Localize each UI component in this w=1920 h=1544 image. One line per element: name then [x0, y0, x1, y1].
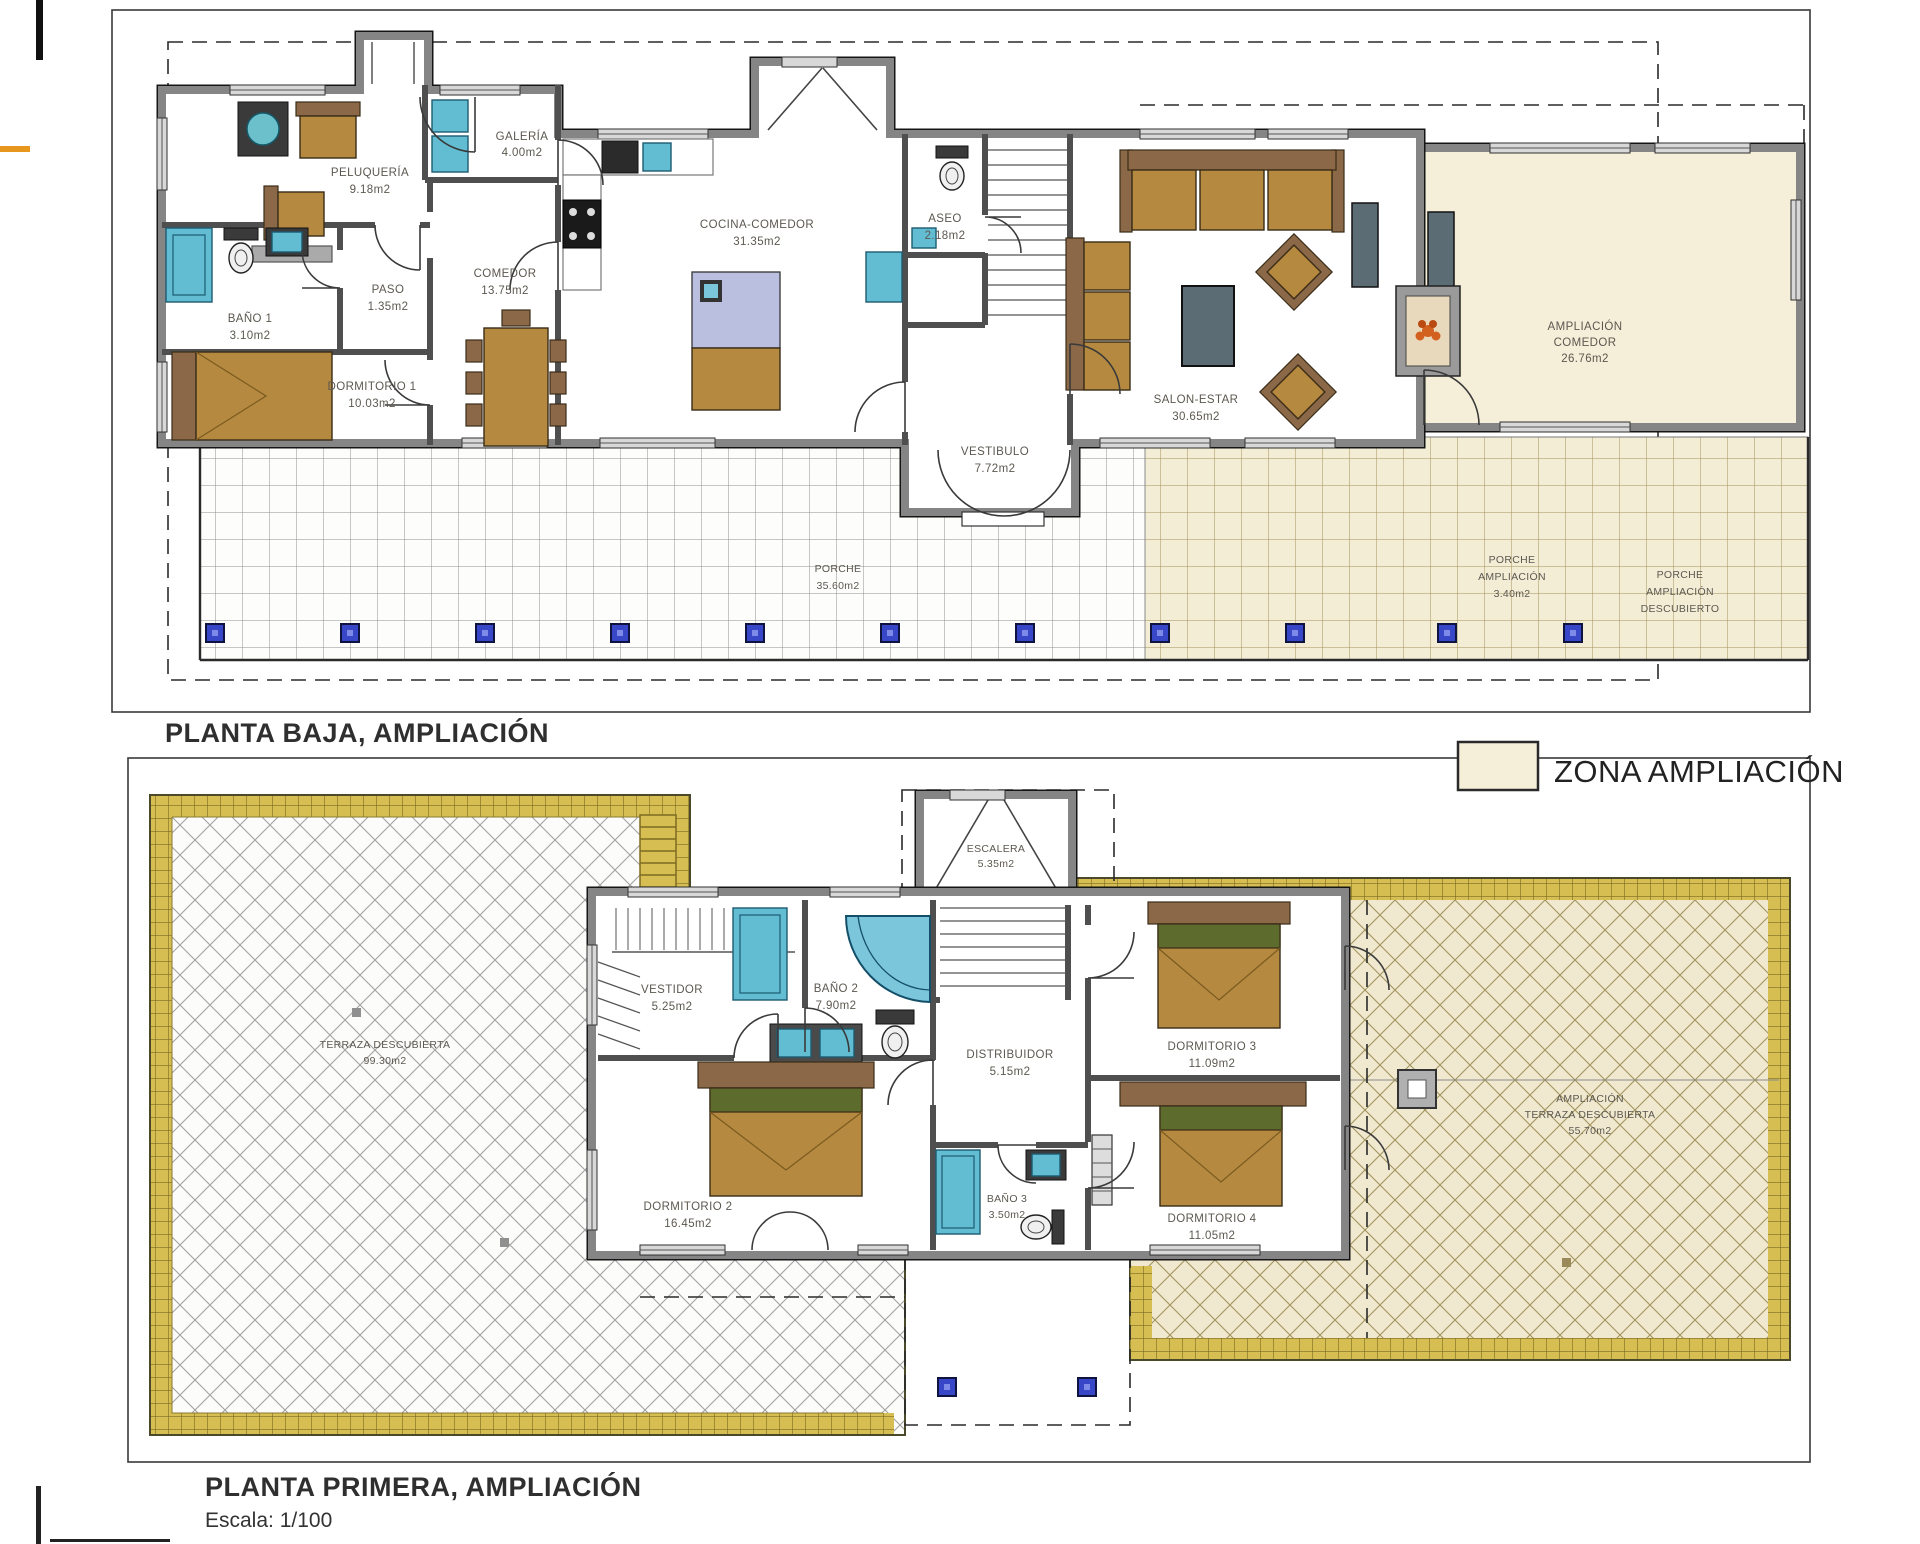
room-area-vestidor: 5.25m2: [652, 1001, 693, 1013]
room-area-dormitorio2: 16.45m2: [664, 1218, 712, 1230]
pillar: [206, 624, 224, 642]
ampliacion-terraza-area: 55.70m2: [1569, 1125, 1612, 1137]
entry-step: [962, 512, 1044, 526]
titles-and-legend: PLANTA BAJA, AMPLIACIÓN ZONA AMPLIACIÓN: [165, 717, 1844, 790]
scale-label: Escala: 1/100: [205, 1509, 332, 1532]
room-label-aseo: ASEO: [928, 213, 962, 225]
room-area-dormitorio4: 11.05m2: [1189, 1230, 1236, 1242]
room-label-comedor: COMEDOR: [474, 268, 537, 280]
dormitorio2-bed: [698, 1062, 874, 1196]
porch-descubierto-label-3: DESCUBIERTO: [1641, 603, 1720, 615]
room-area-paso: 1.35m2: [368, 301, 409, 313]
fireplace: [1396, 286, 1460, 376]
terraza-label: TERRAZA DESCUBIERTA: [320, 1039, 451, 1051]
room-label-ampliacion-comedor-2: COMEDOR: [1554, 337, 1617, 349]
room-label-vestibulo: VESTIBULO: [961, 446, 1029, 458]
room-area-cocina: 31.35m2: [733, 236, 781, 248]
first-floor-plan: ESCALERA 5.35m2 VESTIDOR 5.25m2 BAÑO 2 7…: [150, 790, 1790, 1435]
ampliacion-comedor-room: [1420, 143, 1801, 432]
room-label-salon: SALON-ESTAR: [1154, 394, 1239, 406]
legend-swatch: [1458, 742, 1538, 790]
floor-plan-drawing: PELUQUERÍA 9.18m2 GALERÍA 4.00m2 COMEDOR…: [0, 0, 1920, 1544]
ampliacion-terraza-label-2: TERRAZA DESCUBIERTA: [1525, 1109, 1656, 1121]
terraza-area: 99.30m2: [364, 1055, 407, 1067]
porch-label: PORCHE: [815, 563, 862, 575]
room-label-escalera: ESCALERA: [967, 843, 1025, 855]
room-label-bano3: BAÑO 3: [987, 1192, 1027, 1205]
room-label-galeria: GALERÍA: [496, 130, 549, 143]
room-label-dormitorio2: DORMITORIO 2: [644, 1201, 733, 1213]
dormitorio3-bed: [1148, 902, 1290, 1028]
first-floor-title: PLANTA PRIMERA, AMPLIACIÓN: [205, 1471, 641, 1502]
room-area-escalera: 5.35m2: [978, 858, 1015, 870]
room-area-peluqueria: 9.18m2: [350, 184, 391, 196]
galeria-appliances: [432, 100, 468, 172]
ampliacion-terraza-label-1: AMPLIACIÓN: [1556, 1092, 1624, 1105]
room-area-comedor: 13.75m2: [481, 285, 529, 297]
dormitorio1-bed: [172, 352, 332, 440]
bottom-titles: PLANTA PRIMERA, AMPLIACIÓN Escala: 1/100: [205, 1471, 641, 1532]
room-label-paso: PASO: [372, 284, 405, 296]
room-area-dormitorio1: 10.03m2: [348, 398, 396, 410]
room-label-dormitorio1: DORMITORIO 1: [328, 381, 417, 393]
room-label-peluqueria: PELUQUERÍA: [331, 166, 409, 179]
room-label-distribuidor: DISTRIBUIDOR: [966, 1049, 1053, 1061]
plan-sheet: PELUQUERÍA 9.18m2 GALERÍA 4.00m2 COMEDOR…: [0, 0, 1920, 1544]
ground-floor-title: PLANTA BAJA, AMPLIACIÓN: [165, 717, 549, 748]
room-area-galeria: 4.00m2: [502, 147, 543, 159]
room-label-bano1: BAÑO 1: [228, 312, 273, 325]
porch-ampliacion-area: 3.40m2: [1494, 588, 1531, 600]
room-area-ampliacion-comedor: 26.76m2: [1561, 353, 1609, 365]
porch-area: 35.60m2: [817, 580, 860, 592]
porch-descubierto-label-1: PORCHE: [1657, 569, 1704, 581]
porch-ampliacion-label-2: AMPLIACIÓN: [1478, 570, 1546, 583]
first-floor-pillars: [938, 1378, 1096, 1396]
room-area-bano2: 7.90m2: [816, 1000, 857, 1012]
room-label-bano2: BAÑO 2: [814, 982, 859, 995]
room-label-dormitorio3: DORMITORIO 3: [1168, 1041, 1257, 1053]
room-area-bano1: 3.10m2: [230, 330, 271, 342]
room-area-salon: 30.65m2: [1172, 411, 1220, 423]
room-area-vestibulo: 7.72m2: [975, 463, 1016, 475]
legend-label: ZONA AMPLIACIÓN: [1554, 754, 1844, 789]
room-label-vestidor: VESTIDOR: [641, 984, 703, 996]
ground-floor-plan: PELUQUERÍA 9.18m2 GALERÍA 4.00m2 COMEDOR…: [157, 36, 1808, 680]
room-area-distribuidor: 5.15m2: [990, 1066, 1031, 1078]
porch-ampliacion-label-1: PORCHE: [1489, 554, 1536, 566]
room-area-bano3: 3.50m2: [989, 1209, 1026, 1221]
room-area-dormitorio3: 11.09m2: [1189, 1058, 1236, 1070]
margin-artifacts: [0, 0, 170, 1544]
room-label-dormitorio4: DORMITORIO 4: [1168, 1213, 1257, 1225]
room-label-ampliacion-comedor-1: AMPLIACIÓN: [1548, 320, 1623, 333]
room-label-cocina: COCINA-COMEDOR: [700, 219, 814, 231]
porch-descubierto-label-2: AMPLIACIÓN: [1646, 585, 1714, 598]
room-area-aseo: 2.18m2: [925, 230, 966, 242]
